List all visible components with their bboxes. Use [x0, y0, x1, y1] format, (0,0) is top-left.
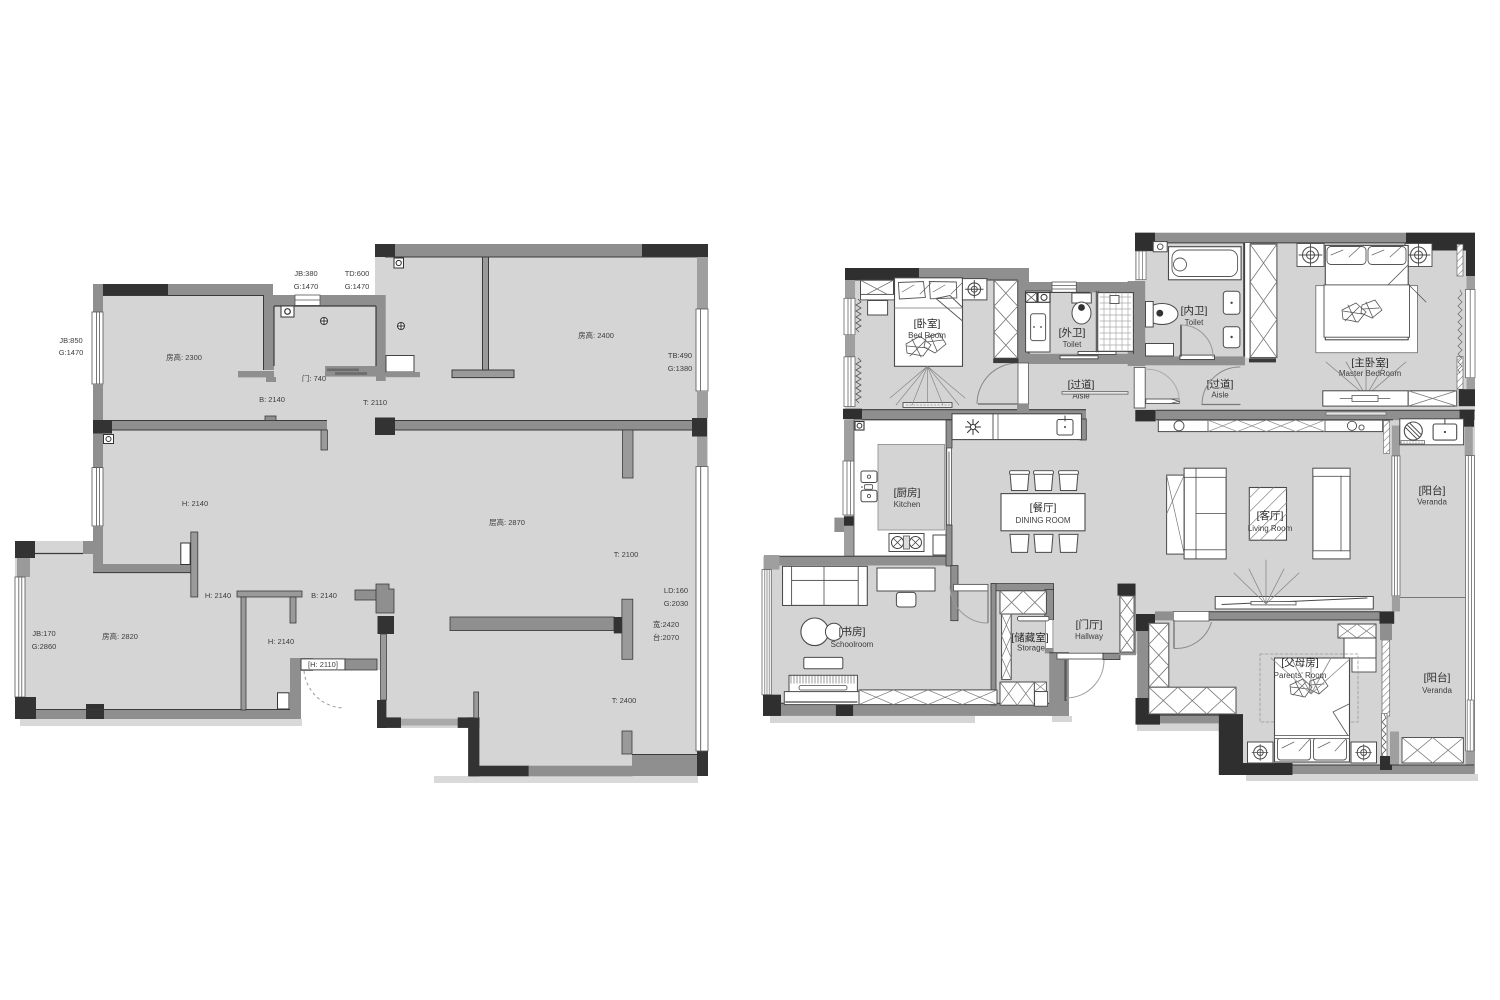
svg-text:门: 740: 门: 740: [302, 374, 326, 383]
svg-text:台:2070: 台:2070: [653, 632, 679, 642]
svg-text:H: 2140: H: 2140: [268, 637, 294, 646]
svg-text:[餐厅]: [餐厅]: [1030, 501, 1057, 514]
svg-text:房高: 2400: 房高: 2400: [578, 330, 614, 340]
svg-text:Storage: Storage: [1017, 644, 1046, 653]
svg-text:[过道]: [过道]: [1207, 378, 1234, 391]
svg-text:Veranda: Veranda: [1422, 686, 1452, 695]
svg-text:LD:160: LD:160: [664, 586, 688, 595]
svg-text:[厨房]: [厨房]: [894, 486, 921, 499]
svg-text:层高: 2870: 层高: 2870: [489, 517, 525, 527]
svg-text:Kitchen: Kitchen: [894, 500, 921, 509]
svg-text:TB:490: TB:490: [668, 351, 692, 360]
svg-text:Veranda: Veranda: [1417, 498, 1447, 507]
svg-text:T: 2100: T: 2100: [614, 550, 639, 559]
svg-text:G:2860: G:2860: [32, 642, 57, 651]
svg-text:Toilet: Toilet: [1063, 340, 1082, 349]
svg-text:[内卫]: [内卫]: [1181, 304, 1208, 317]
svg-text:H: 2140: H: 2140: [182, 499, 208, 508]
svg-text:[储藏室]: [储藏室]: [1011, 631, 1048, 644]
svg-text:G:1470: G:1470: [294, 282, 319, 291]
svg-text:房高: 2820: 房高: 2820: [102, 631, 138, 641]
svg-text:[书房]: [书房]: [839, 625, 866, 638]
svg-text:[阳台]: [阳台]: [1419, 484, 1446, 497]
svg-text:[卧室]: [卧室]: [914, 317, 941, 330]
svg-text:G:1380: G:1380: [668, 364, 693, 373]
svg-text:[父母房]: [父母房]: [1281, 656, 1318, 669]
svg-text:JB:380: JB:380: [294, 269, 317, 278]
svg-text:Hallway: Hallway: [1075, 632, 1103, 641]
svg-text:[过道]: [过道]: [1068, 378, 1095, 391]
svg-text:JB:850: JB:850: [59, 336, 82, 345]
svg-text:[外卫]: [外卫]: [1059, 327, 1086, 339]
svg-text:[H: 2110]: [H: 2110]: [308, 660, 338, 669]
svg-text:JB:170: JB:170: [32, 629, 55, 638]
svg-text:[阳台]: [阳台]: [1424, 671, 1451, 684]
svg-text:G:2030: G:2030: [664, 599, 689, 608]
svg-text:TD:600: TD:600: [345, 269, 370, 278]
svg-text:Bed Room: Bed Room: [908, 331, 946, 340]
svg-text:Parents' Room: Parents' Room: [1274, 671, 1327, 680]
svg-text:H: 2140: H: 2140: [205, 591, 231, 600]
svg-text:T: 2110: T: 2110: [363, 398, 387, 407]
svg-text:房高: 2300: 房高: 2300: [166, 352, 202, 362]
svg-text:G:1470: G:1470: [345, 282, 370, 291]
svg-text:T: 2400: T: 2400: [612, 696, 637, 705]
svg-text:Aisle: Aisle: [1211, 391, 1229, 400]
svg-text:宽:2420: 宽:2420: [653, 619, 679, 629]
svg-text:B: 2140: B: 2140: [311, 591, 337, 600]
svg-text:Toilet: Toilet: [1185, 318, 1204, 327]
svg-text:DINING ROOM: DINING ROOM: [1015, 516, 1070, 525]
svg-text:G:1470: G:1470: [59, 348, 84, 357]
svg-text:[客厅]: [客厅]: [1257, 509, 1284, 522]
svg-text:Schoolroom: Schoolroom: [831, 640, 874, 649]
svg-text:[门厅]: [门厅]: [1076, 618, 1103, 631]
svg-text:B: 2140: B: 2140: [259, 395, 285, 404]
svg-text:Living Room: Living Room: [1248, 524, 1293, 533]
